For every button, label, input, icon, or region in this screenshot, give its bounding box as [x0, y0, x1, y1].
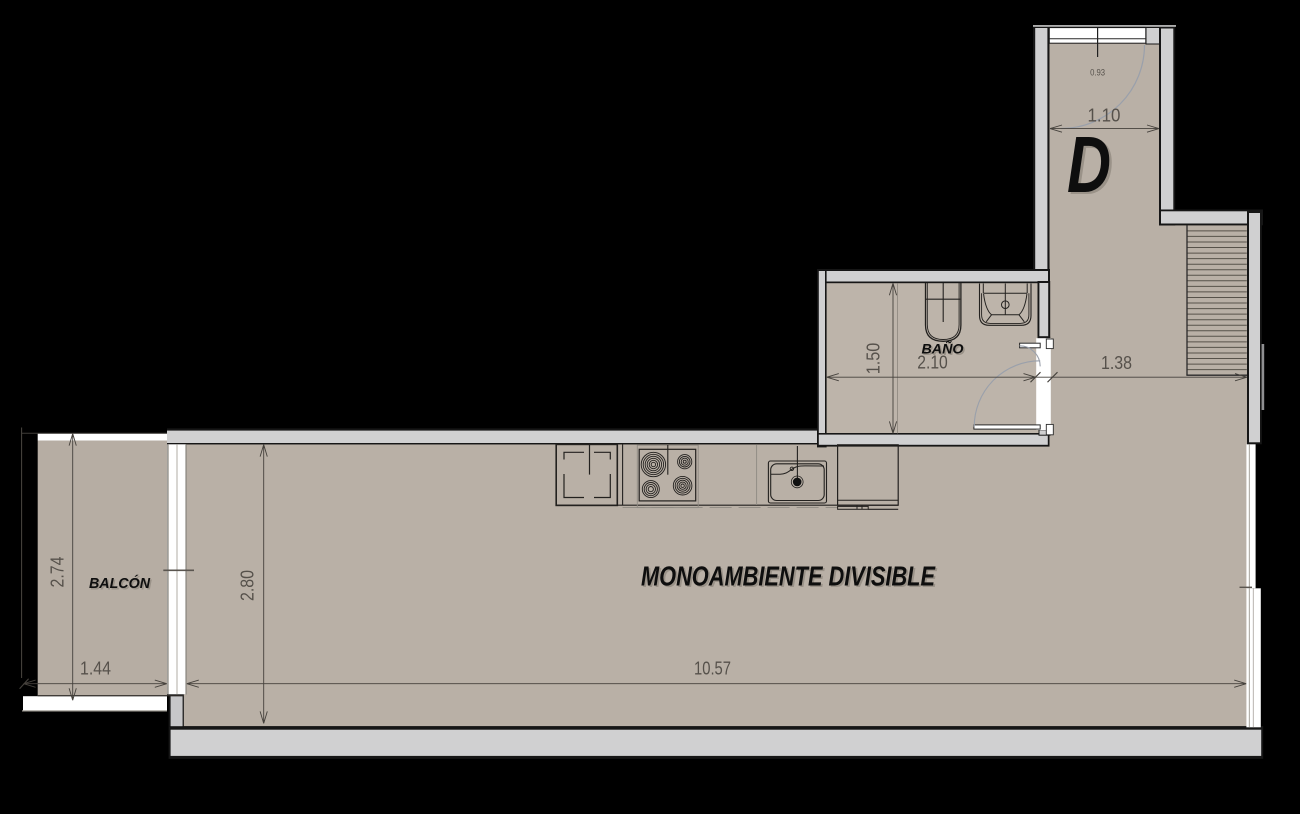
svg-text:0.93: 0.93 [1090, 68, 1105, 79]
svg-text:10.57: 10.57 [694, 659, 731, 679]
svg-text:BAÑO: BAÑO [922, 340, 964, 357]
svg-text:2.80: 2.80 [237, 570, 257, 601]
svg-text:2.74: 2.74 [47, 557, 67, 588]
svg-text:1.50: 1.50 [863, 343, 883, 375]
svg-text:1.38: 1.38 [1101, 353, 1132, 373]
svg-text:1.44: 1.44 [80, 659, 111, 679]
svg-text:D: D [1067, 120, 1111, 209]
svg-text:MONOAMBIENTE DIVISIBLE: MONOAMBIENTE DIVISIBLE [641, 561, 936, 592]
svg-text:BALCÓN: BALCÓN [89, 574, 151, 592]
